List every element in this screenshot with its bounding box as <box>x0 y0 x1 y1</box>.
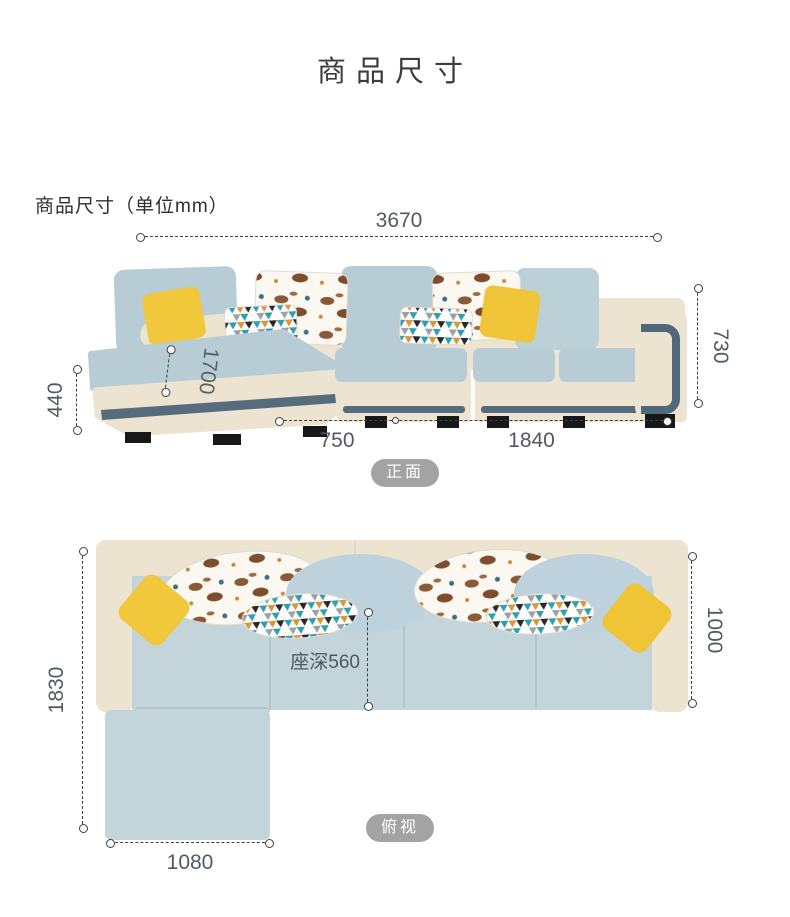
dim-height-label: 730 <box>708 316 732 376</box>
page-title: 商品尺寸 <box>0 48 790 90</box>
dim-height-line <box>697 288 698 404</box>
dim-seat-height-label: 440 <box>44 370 68 430</box>
dim-bottom-widths-line <box>279 420 668 421</box>
dim-total-width-line <box>140 236 658 237</box>
top-view-badge: 俯视 <box>366 814 434 842</box>
right-armrest <box>635 306 687 422</box>
dim-chaise-width-line <box>110 842 270 843</box>
dim-left-width-label: 750 <box>279 429 395 453</box>
seat-cushions <box>335 348 641 382</box>
dim-seat-depth-line <box>367 612 368 707</box>
product-dimensions-page: 商品尺寸 商品尺寸（单位mm） 3670 <box>0 0 790 917</box>
dim-body-depth-label: 1000 <box>702 595 726 665</box>
dim-right-width-label: 1840 <box>395 429 668 453</box>
dim-seat-height-line <box>76 369 77 431</box>
dim-total-depth-line <box>82 551 83 829</box>
dim-total-width-label: 3670 <box>140 209 658 233</box>
sofa-top-illustration <box>92 538 692 846</box>
dim-body-depth-line <box>691 556 692 704</box>
front-view-badge: 正面 <box>371 459 439 487</box>
dim-bottom-widths-mid-circle <box>392 417 399 424</box>
dim-seat-depth-label: 座深560 <box>272 651 360 675</box>
dim-chaise-width-label: 1080 <box>110 851 270 875</box>
dim-total-depth-label: 1830 <box>45 655 69 725</box>
